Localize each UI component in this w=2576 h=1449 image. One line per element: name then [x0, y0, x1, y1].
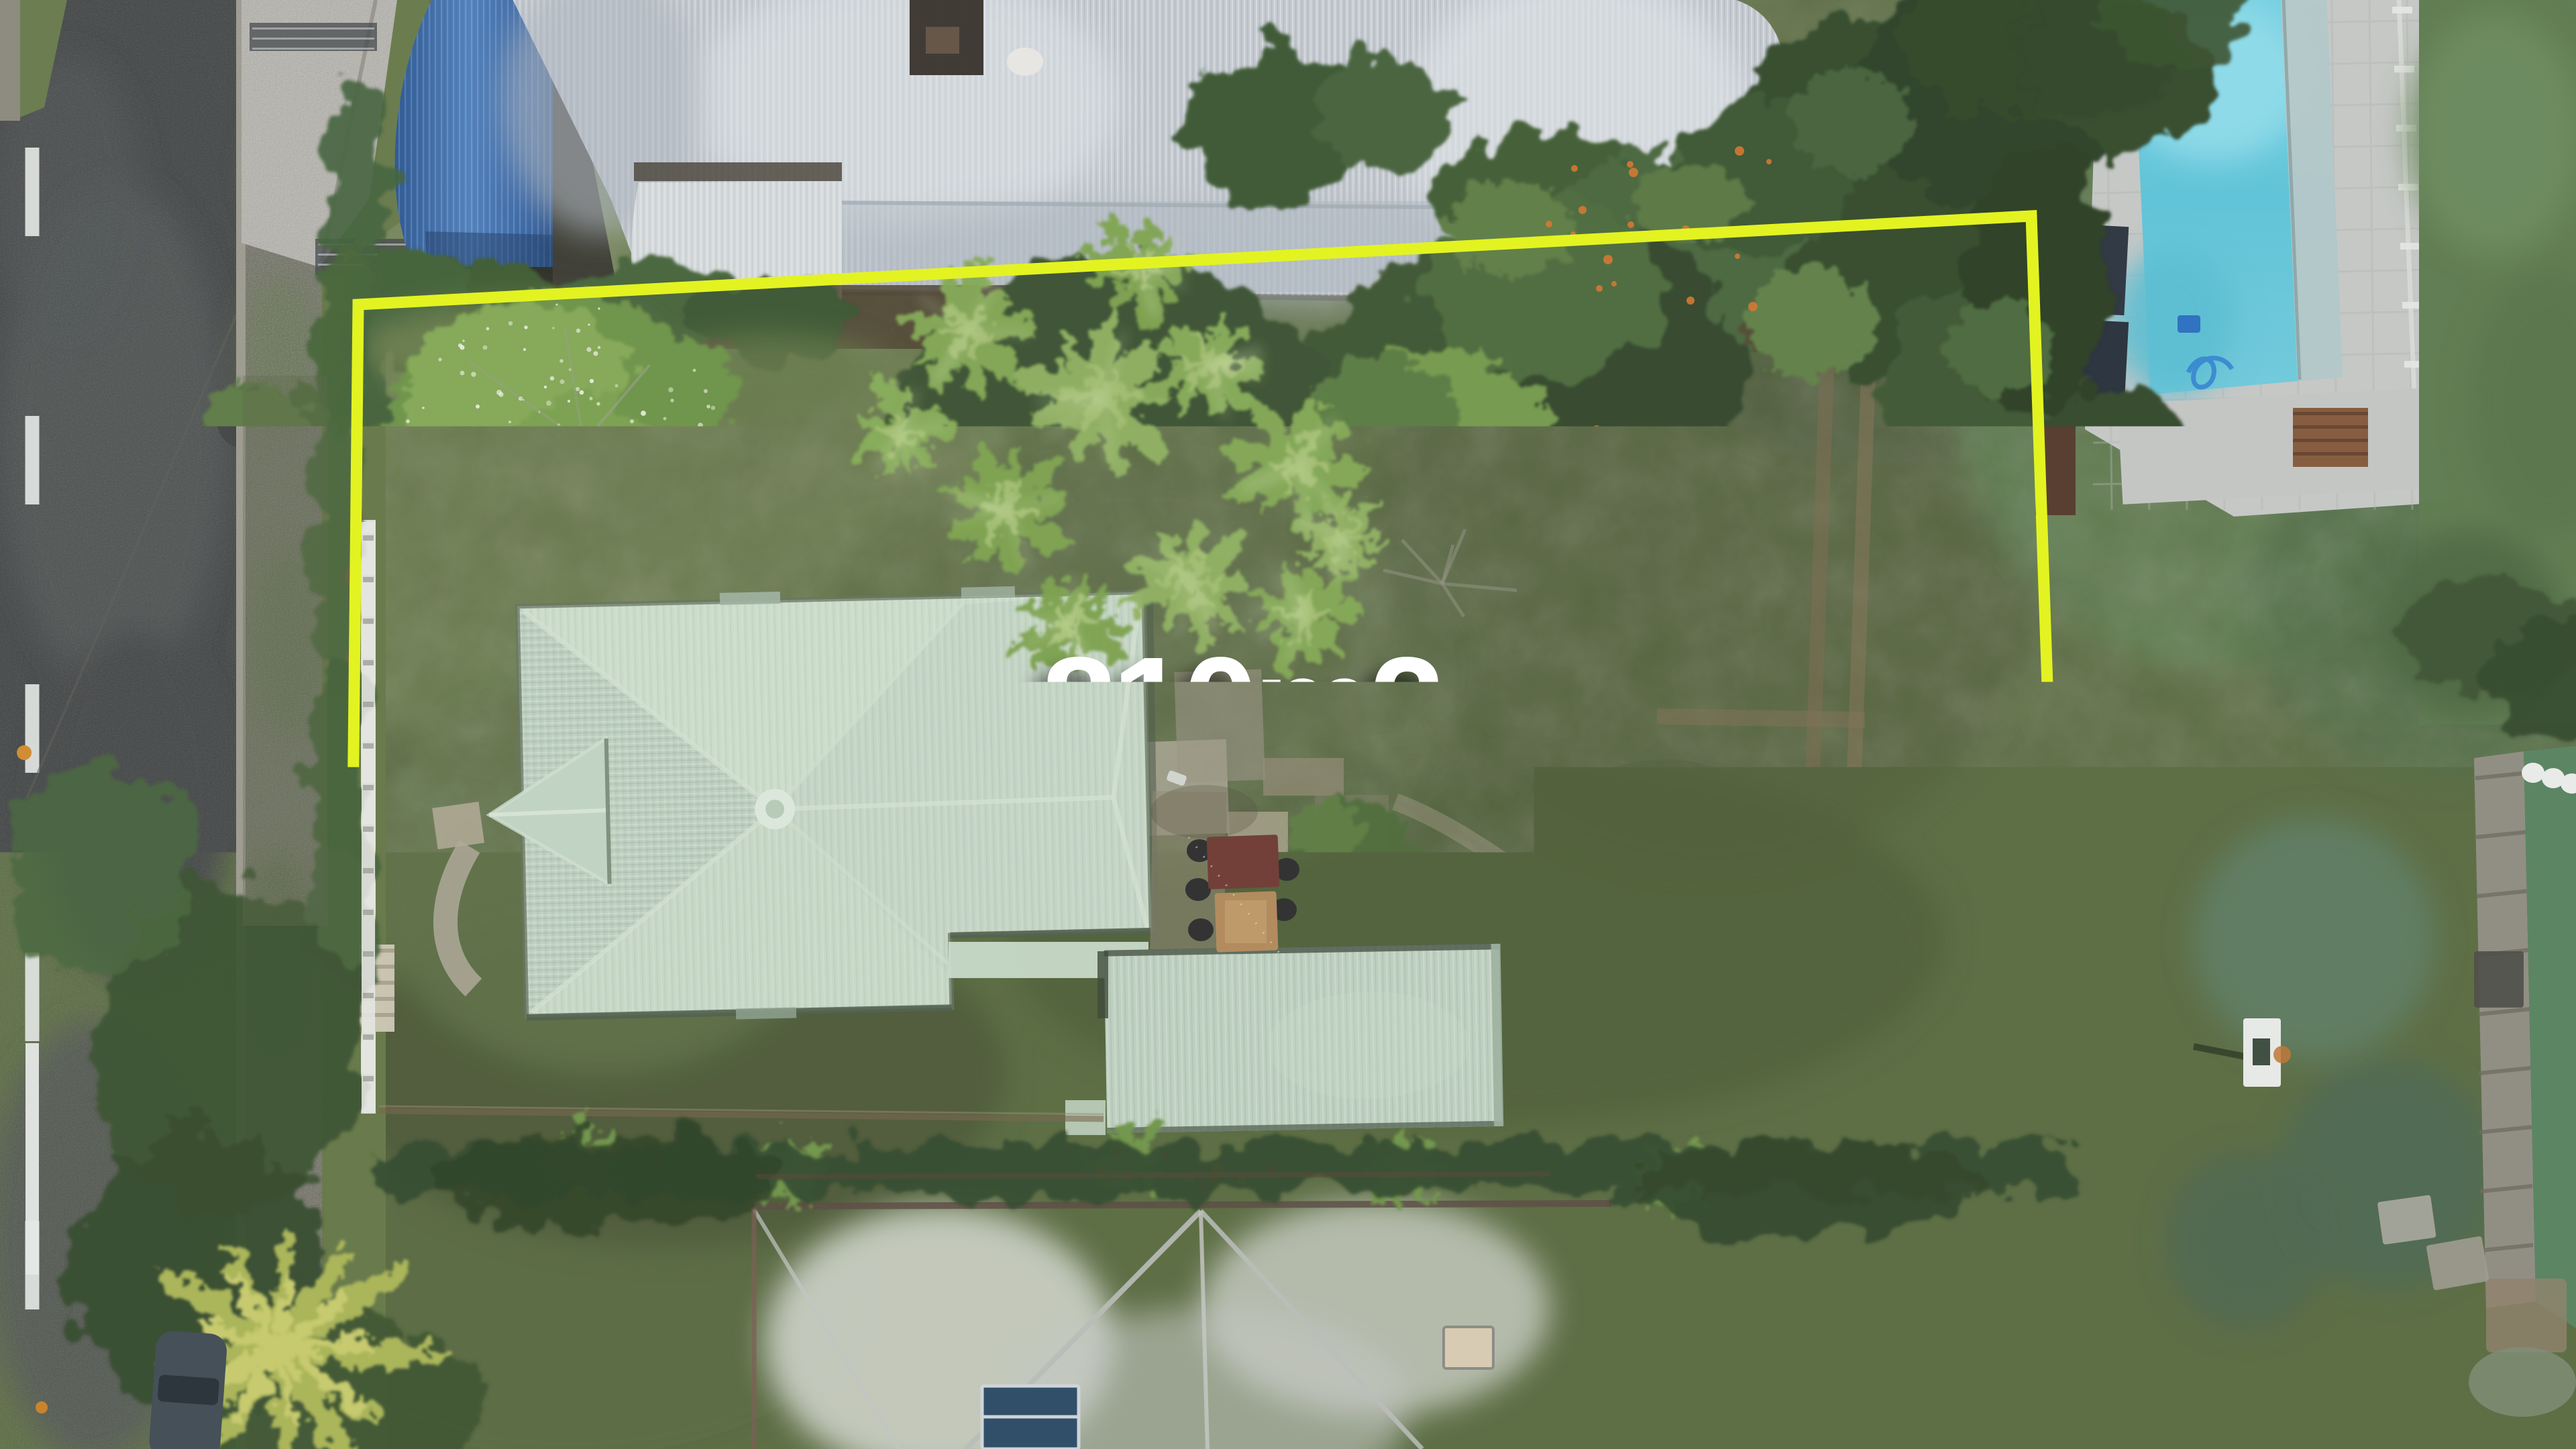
svg-text:810m2: 810m2	[1041, 629, 1445, 780]
